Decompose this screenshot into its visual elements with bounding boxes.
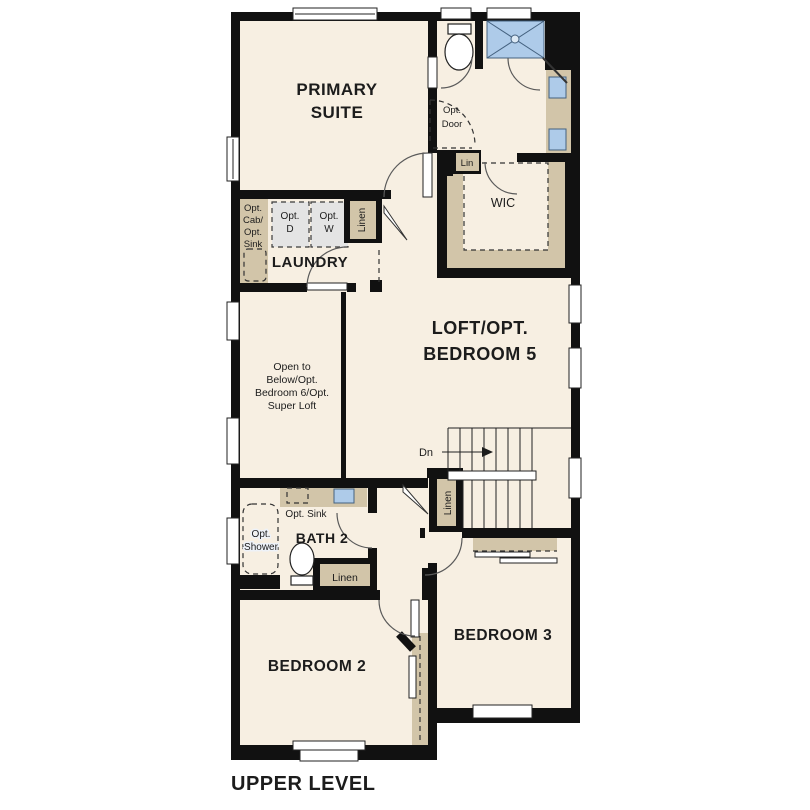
window-left-bath2 [227,518,239,564]
window-left-openbelow-1 [227,302,239,340]
wall-shower-nook [240,575,280,589]
bedroom3-closet-shelf [473,538,557,551]
primary-toilet [445,24,473,70]
laundry-label: LAUNDRY [272,254,348,271]
opt-washer-label-2: W [324,224,334,235]
window-top-shower [487,8,531,19]
loft-label-2: BEDROOM 5 [423,344,537,364]
opt-cab-sink-label-1: Opt. [244,203,262,214]
primary-door-leaf [423,153,432,197]
wall-wic-left [437,162,447,268]
wall-laundry-bottom-right [347,283,356,292]
bedroom2-door-leaf [411,600,419,637]
primary-sink-2 [549,129,566,150]
opt-dryer-label-2: D [286,224,293,235]
wall-hall-bed3 [422,568,430,600]
hall-linen-label: Linen [357,208,368,232]
wall-bed2-top [240,590,380,600]
wall-bath2-right-upper [368,488,377,513]
wall-laundry-bottom-left [240,283,307,292]
wall-toilet-closet [475,21,483,69]
loft-label-1: LOFT/OPT. [432,318,529,338]
wall-hall-stub [370,280,382,292]
open-below-label-2: Below/Opt. [266,374,317,386]
opt-cab-sink-label-2: Cab/ [243,215,263,226]
window-top-toiletroom [441,8,471,19]
open-below-label-4: Super Loft [268,400,317,412]
wall-bath2-top [231,478,428,488]
window-bottom-bedroom2 [293,741,365,761]
stairs-handrail [448,471,536,480]
wall-wic-top [517,153,571,162]
bath2-opt-sink-label: Opt. Sink [285,509,327,520]
toilet-door-leaf [428,57,437,88]
open-below-label-3: Bedroom 6/Opt. [255,387,329,399]
floor-footprint [231,12,580,760]
bedroom2-label: BEDROOM 2 [268,658,366,675]
wall-stairs-bottom-stub [420,528,425,538]
window-bottom-bedroom3 [473,705,532,718]
primary-suite-label-2: SUITE [311,103,364,122]
primary-suite-label-1: PRIMARY [296,80,377,99]
bath2-linen-label: Linen [332,572,358,584]
opt-shower-label-1: Opt. [252,529,271,540]
bedroom3-label: BEDROOM 3 [454,627,552,644]
window-left-openbelow-2 [227,418,239,464]
opt-cab-sink-label-4: Sink [244,239,263,250]
window-right-loft-2 [569,348,581,388]
opt-cab-sink-label-3: Opt. [244,227,262,238]
bedroom2-closet-door [409,656,416,698]
window-top-primary [293,8,377,20]
opt-washer-label-1: Opt. [320,211,339,222]
laundry-door-leaf [307,283,347,290]
bath2-sink [334,489,354,503]
bath2-label: BATH 2 [296,530,349,546]
floorplan-page: PRIMARY SUITE LAUNDRY LOFT/OPT. BEDROOM … [0,0,810,810]
bedroom3-closet-door-1 [475,552,530,557]
opt-shower-label-2: Shower [244,542,279,553]
primary-shower [487,21,544,58]
wic-label: WIC [491,196,515,210]
wall-topright-corner [545,12,580,70]
opt-door-label-1: Opt. [443,105,461,116]
wall-exterior-left [231,12,240,760]
page-title: UPPER LEVEL [231,773,375,795]
wall-stairs-bottom [462,528,571,538]
wall-open-below-divider [341,292,346,478]
bedroom3-closet-door-2 [500,558,557,563]
wall-wic-bottom [437,268,580,278]
open-below-label-1: Open to [273,361,311,373]
bath2-toilet [290,543,314,585]
window-left-primary [227,137,239,181]
window-right-stairs [569,458,581,498]
floorplan-svg: PRIMARY SUITE LAUNDRY LOFT/OPT. BEDROOM … [0,0,810,810]
stairs-dn-label: Dn [419,447,433,459]
opt-dryer-label-1: Opt. [281,211,300,222]
stairs-linen-label: Linen [443,491,454,515]
opt-door-label-2: Door [442,119,463,130]
wic-lin-label: Lin [461,158,474,169]
window-right-loft-1 [569,285,581,323]
wall-wic-right [565,162,580,268]
